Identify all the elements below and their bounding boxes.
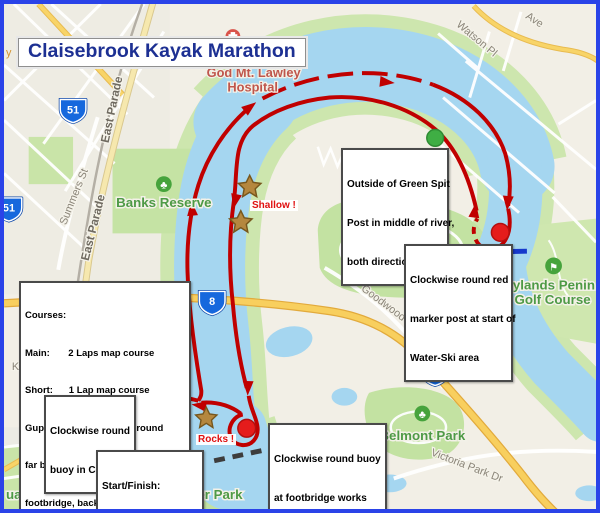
svg-text:♣: ♣ — [419, 409, 426, 421]
banks-reserve-tree-icon: ♣ — [156, 176, 172, 192]
route-51-shield: 51 — [60, 99, 86, 122]
svg-text:8: 8 — [209, 296, 215, 308]
shallow-warning-label: Shallow ! — [250, 200, 298, 211]
belmont-park-tree-icon: ♣ — [414, 406, 430, 422]
svg-text:⚑: ⚑ — [549, 262, 558, 273]
start-finish-note-box: Start/Finish: Footbridge in Cove — [96, 450, 204, 513]
red-marker-note-box: Clockwise round red marker post at start… — [404, 244, 513, 382]
map-title: Claisebrook Kayak Marathon — [18, 38, 306, 67]
hwy-partial-label: y — [6, 47, 12, 59]
footbridge-buoy-note-box: Clockwise round buoy at footbridge works — [268, 423, 387, 513]
svg-text:51: 51 — [4, 203, 15, 215]
green-spit-post-marker — [427, 130, 444, 147]
golf-course-icon: ⚑ — [545, 257, 562, 274]
map-frame: ♣ ♞ ⚑ ♣ 51 51 8 8 of God Mt. Lawley Hosp… — [0, 0, 600, 513]
red-marker-post — [491, 224, 509, 242]
footbridge-buoy-marker — [238, 419, 256, 437]
courses-line: Courses: — [25, 310, 185, 323]
route-8-shield-a: 8 — [199, 291, 225, 314]
hospital-label-hospital: Hospital — [227, 80, 278, 95]
courses-line: Main: 2 Laps map course — [25, 348, 185, 361]
rocks-warning-label: Rocks ! — [196, 434, 236, 445]
banks-reserve-label: Banks Reserve — [116, 195, 211, 210]
svg-text:♣: ♣ — [160, 180, 167, 192]
svg-text:51: 51 — [67, 104, 79, 116]
maylands-golf-label-2: Golf Course — [514, 292, 590, 307]
belmont-park-label: Belmont Park — [379, 428, 465, 443]
